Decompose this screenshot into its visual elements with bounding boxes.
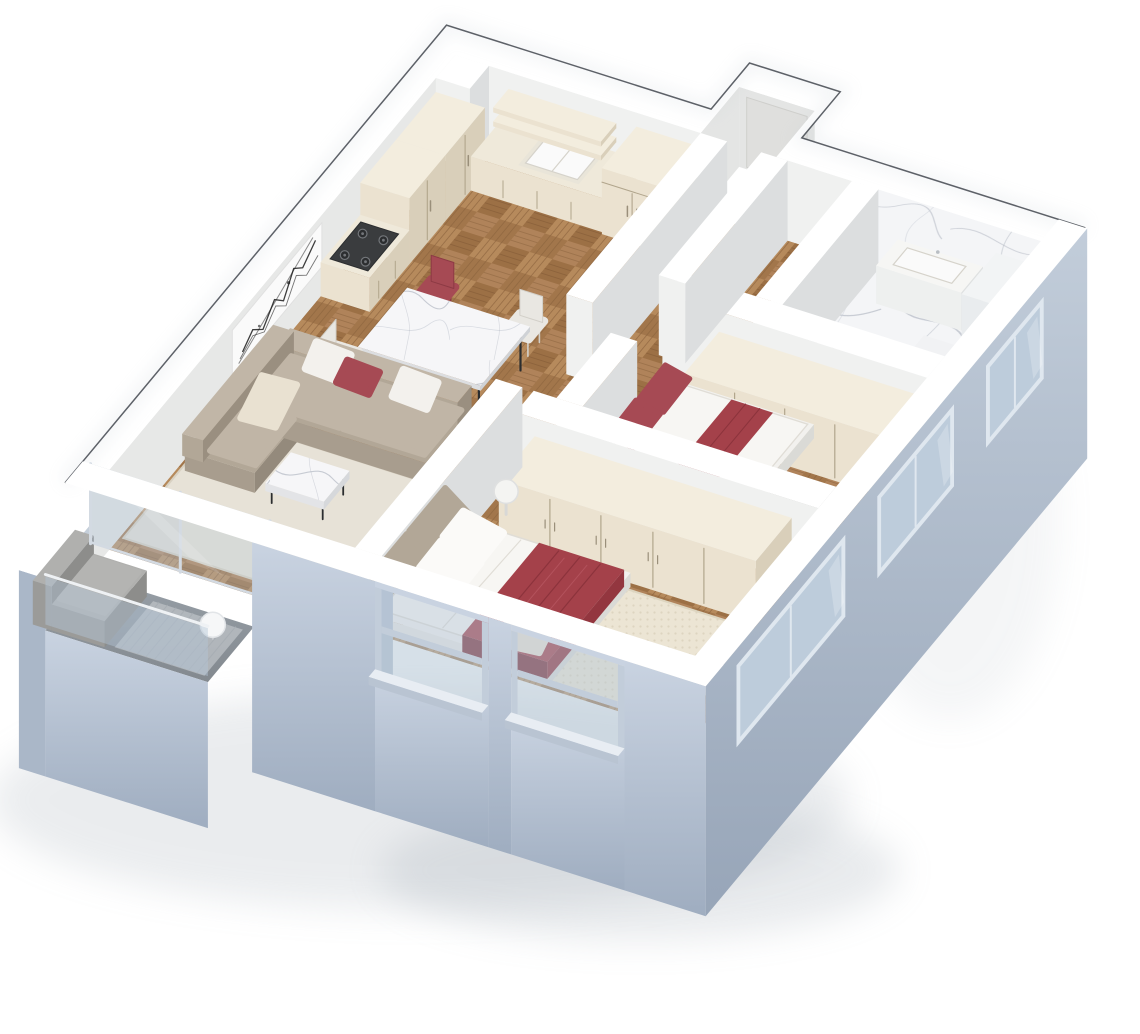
floor-plan-scene bbox=[0, 0, 1140, 1034]
window-front bbox=[369, 581, 489, 847]
window-front bbox=[505, 624, 625, 890]
apartment-render bbox=[0, 25, 1087, 940]
render-canvas bbox=[0, 0, 1140, 1034]
floor-plan-3d-render bbox=[0, 0, 1140, 1034]
